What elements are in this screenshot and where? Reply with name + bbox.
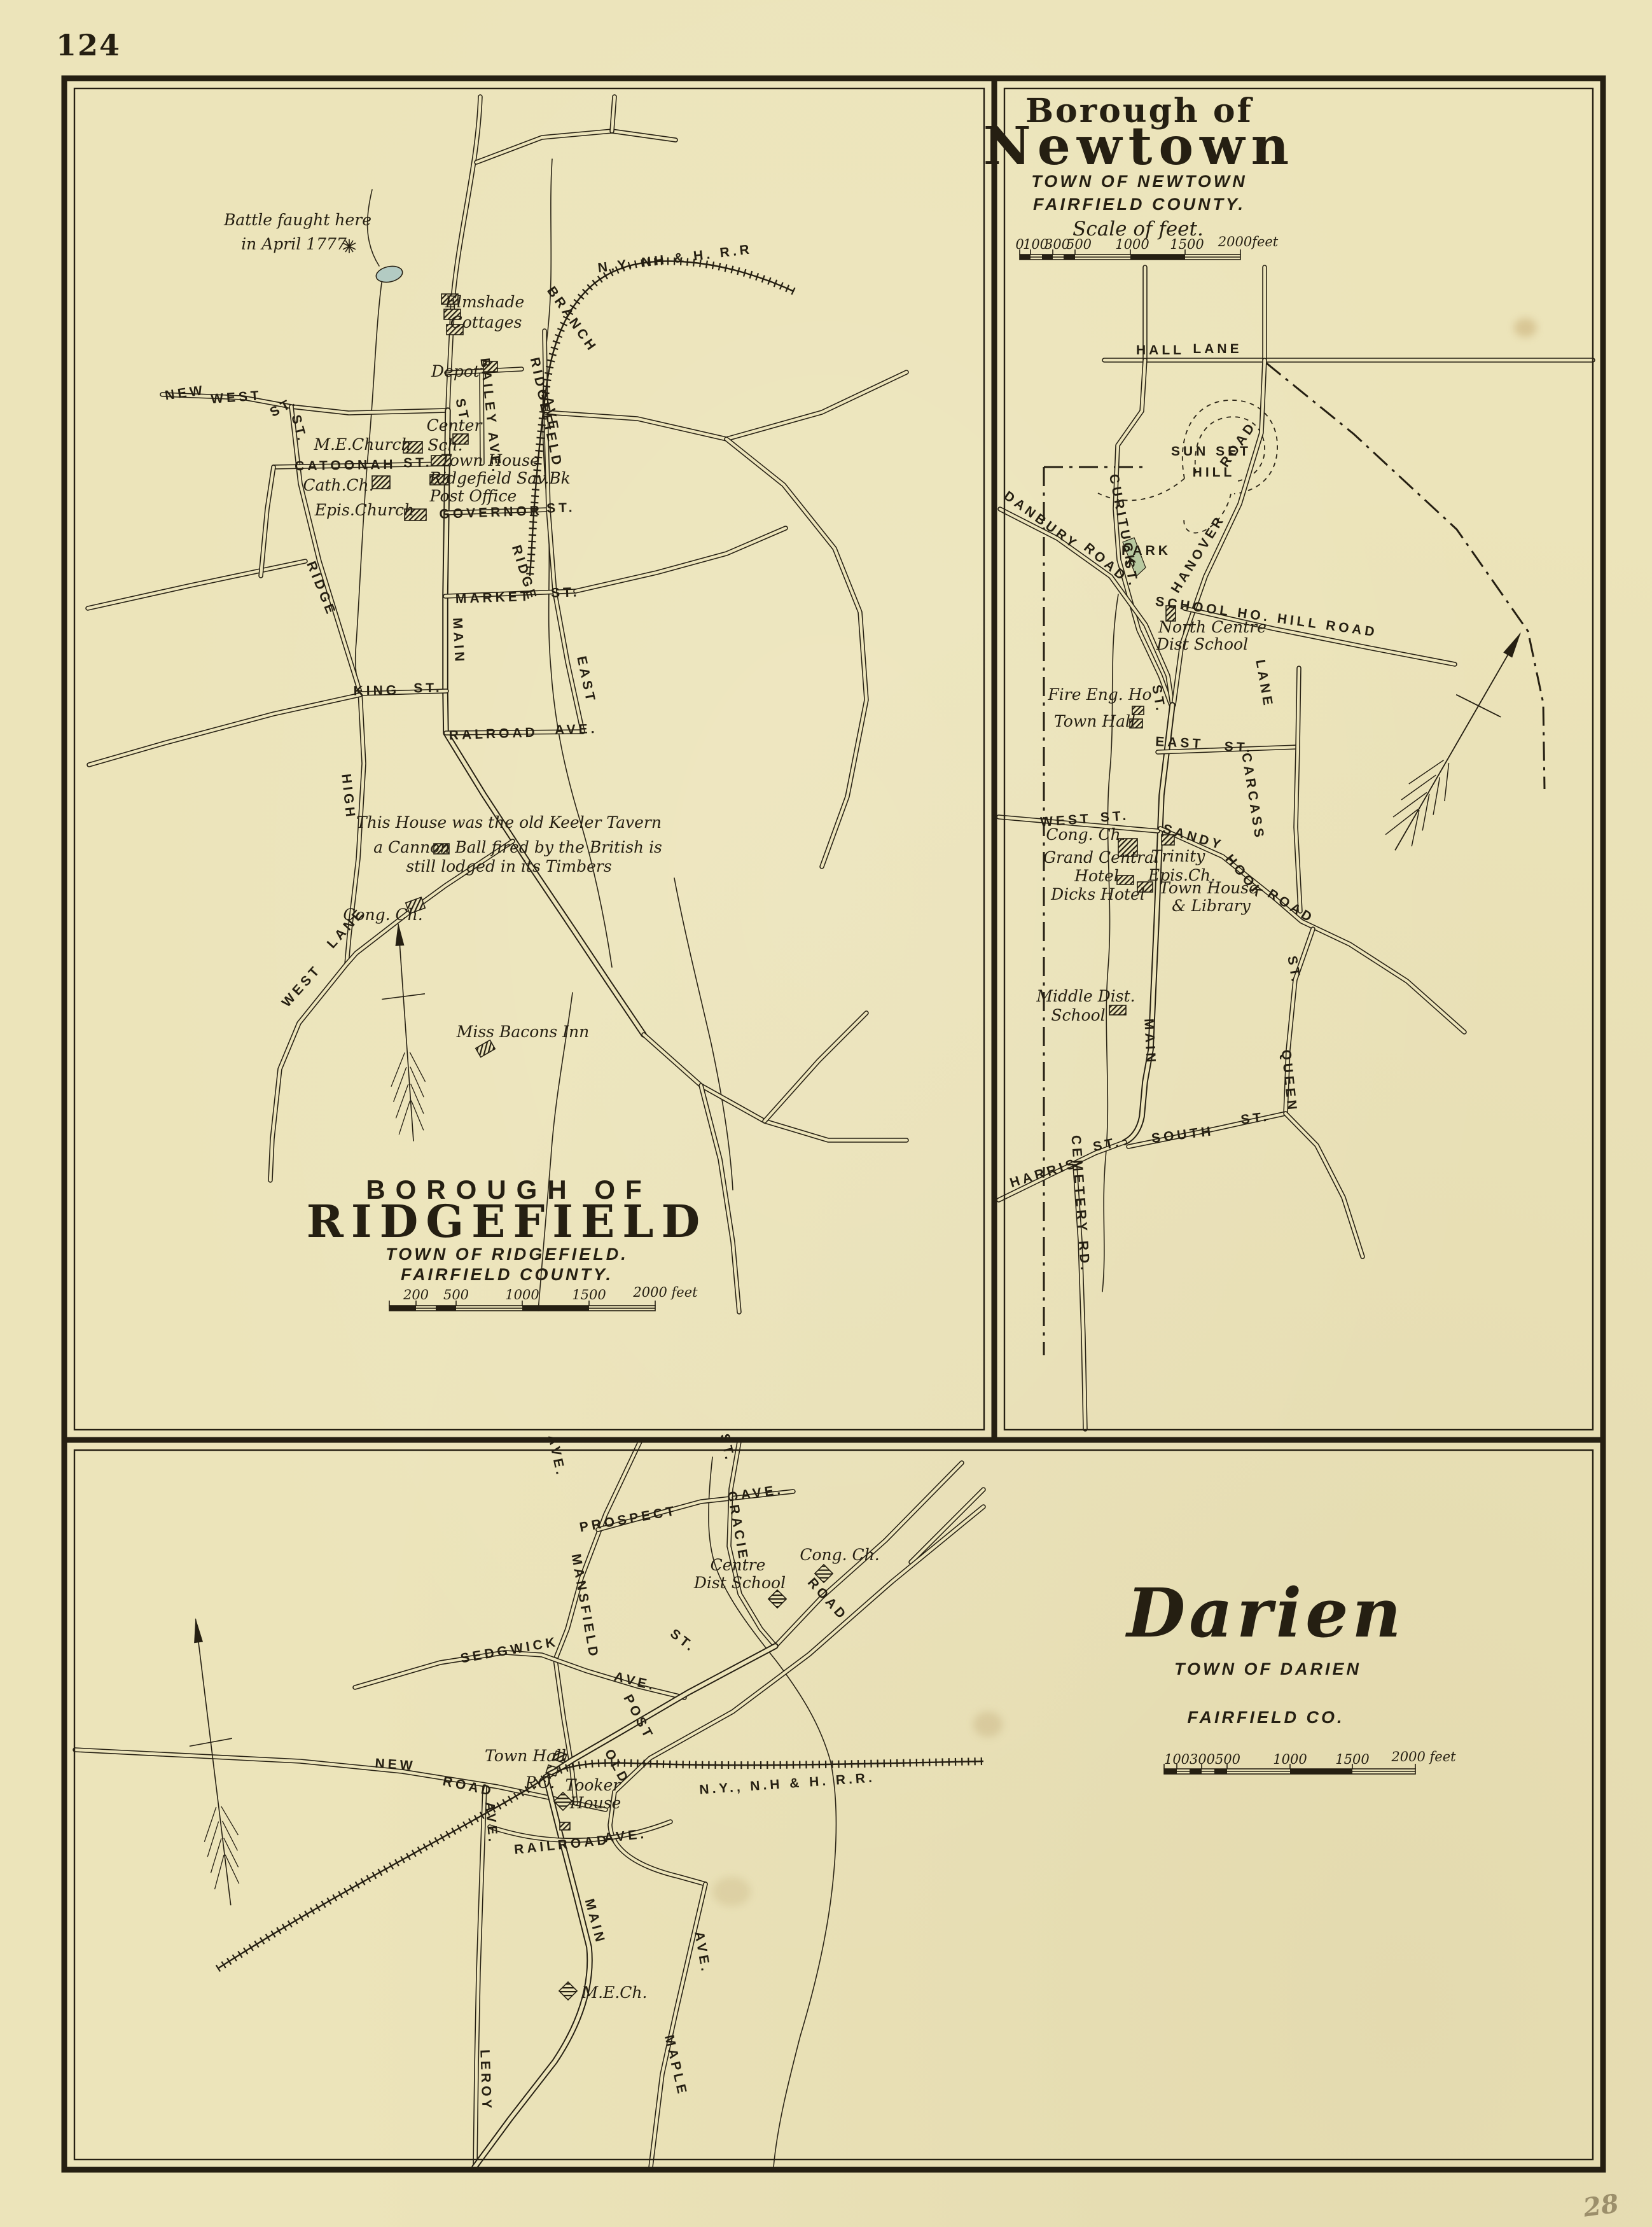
map-label: Centre	[711, 1556, 766, 1574]
atlas-page: 124	[0, 0, 1652, 2227]
map-label: Post Office	[429, 487, 517, 505]
map-label: HANOVER	[1169, 512, 1228, 596]
map-label: 500	[1066, 237, 1092, 252]
handwritten-note: 28	[1581, 2188, 1621, 2223]
map-label: 1500	[1170, 237, 1204, 252]
map-label: NEW	[375, 1756, 416, 1773]
ridgefield-title-block: BOROUGH OF RIDGEFIELD TOWN OF RIDGEFIELD…	[307, 1175, 707, 1284]
map-label: ROAD	[805, 1575, 850, 1624]
map-label: Town Hall	[1054, 712, 1135, 730]
road-core	[475, 1646, 775, 2167]
map-label: AVE.	[740, 1482, 784, 1502]
map-label: BRANCH	[544, 284, 600, 355]
map-label: PARK	[1121, 543, 1171, 558]
map-label: ST.	[413, 681, 443, 696]
newtown-subtitle1: TOWN OF NEWTOWN	[1031, 172, 1247, 191]
map-label: Dist School	[693, 1574, 786, 1592]
map-label: WEST	[211, 388, 263, 407]
map-label: 1000	[1115, 237, 1149, 252]
map-label: 1000	[505, 1287, 539, 1302]
map-label: still lodged in its Timbers	[406, 857, 611, 876]
map-label: EAST	[1155, 734, 1204, 751]
map-label: 1500	[1335, 1752, 1369, 1767]
map-label: N.Y. NH & H. R.R	[597, 242, 753, 276]
map-label: LEROY	[477, 2049, 494, 2112]
map-label: 1500	[572, 1287, 606, 1302]
map-label: Hotel	[1074, 867, 1119, 885]
map-label: PROSPECT	[578, 1504, 678, 1535]
compass-darien	[174, 1616, 253, 1908]
map-label: AVE.	[613, 1669, 658, 1694]
compass-ridgefield	[377, 921, 435, 1143]
map-label: in April 1777	[241, 235, 347, 253]
map-label: ROAD	[1265, 886, 1317, 926]
map-label: Town House	[440, 451, 539, 470]
map-label: Cong. Ch.	[800, 1546, 879, 1564]
road-core	[644, 1035, 906, 1140]
map-label: ST.	[403, 456, 433, 471]
map-label: 300	[1190, 1752, 1215, 1767]
map-label: ST.	[667, 1626, 699, 1656]
map-label: RALROAD	[448, 725, 538, 743]
map-label: Cottages	[450, 313, 522, 332]
map-label: RIDGE	[303, 559, 339, 618]
darien-subtitle1: TOWN OF DARIEN	[1174, 1659, 1361, 1679]
compass-newtown	[1373, 620, 1543, 863]
map-label: Miss Bacons Inn	[456, 1023, 589, 1041]
map-label: MAIN	[450, 617, 467, 665]
ridgefield-subtitle1: TOWN OF RIDGEFIELD.	[385, 1245, 628, 1264]
map-label: SOUTH	[1151, 1124, 1215, 1146]
map-label: Town Hall	[485, 1747, 566, 1765]
map-label: Trinity	[1151, 847, 1206, 865]
map-label: 1000	[1273, 1752, 1307, 1767]
map-label: Ridgefield Sav.Bk	[429, 469, 571, 487]
map-label: Dicks Hotel	[1050, 885, 1145, 904]
map-label: LANE	[1253, 659, 1275, 709]
map-label: MAIN	[1141, 1018, 1158, 1066]
newtown-title-block: Borough of Newtown TOWN OF NEWTOWN FAIRF…	[983, 92, 1296, 241]
map-label: 2000 feet	[632, 1285, 698, 1300]
road-core	[261, 467, 274, 576]
map-label: KING	[353, 683, 399, 698]
darien-title-block: Darien TOWN OF DARIEN FAIRFIELD CO.	[1125, 1573, 1405, 1727]
map-label: 2000feet	[1218, 234, 1279, 249]
map-label: AVE.	[691, 1930, 713, 1975]
map-label: Cong. Ch.	[343, 905, 422, 924]
map-label: ST.	[1100, 808, 1130, 825]
map-label: 500	[1215, 1752, 1240, 1767]
map-label: Depot	[431, 362, 480, 380]
road-core	[1286, 1113, 1363, 1257]
map-label: MARKET	[455, 589, 532, 606]
map-label: Tooker	[566, 1776, 622, 1794]
map-label: Center	[427, 416, 483, 435]
map-label: AVE.	[555, 722, 598, 737]
map-label: Battle faught here	[223, 211, 371, 229]
map-label: Middle Dist.	[1036, 987, 1135, 1005]
map-label: 100	[1164, 1752, 1190, 1767]
map-label: HALL	[1136, 343, 1184, 358]
map-label: Cong. Ch.	[1046, 825, 1125, 844]
darien-title: Darien	[1125, 1573, 1405, 1652]
map-label: This House was the old Keeler Tavern	[356, 813, 662, 832]
map-label: P.O.	[525, 1773, 555, 1792]
newtown-title-line2: Newtown	[983, 116, 1296, 177]
map-label: 2000 feet	[1391, 1749, 1456, 1764]
map-label: GOVERNOR	[439, 503, 543, 522]
buildings	[372, 294, 1176, 2000]
map-label: ST.	[546, 500, 576, 516]
map-borders	[64, 78, 1603, 2170]
map-label: HIGH	[338, 773, 357, 821]
map-label: Grand Central	[1043, 848, 1159, 867]
map-label: Epis.Church	[314, 501, 414, 519]
map-label: a Cannon Ball fired by the British is	[373, 838, 662, 856]
map-label: ST.	[717, 1432, 737, 1463]
ridgefield-subtitle2: FAIRFIELD COUNTY.	[401, 1265, 613, 1284]
map-label: NEW	[164, 383, 207, 403]
map-label: Dist School	[1156, 635, 1248, 653]
map-label: 200	[403, 1287, 429, 1302]
map-label: School	[1051, 1006, 1105, 1024]
road-core	[88, 561, 305, 608]
map-label: ST.	[288, 413, 310, 445]
map-label: House	[569, 1794, 621, 1812]
map-label: N.Y., N.H & H. R.R.	[699, 1770, 876, 1797]
map-label: M.E.Church	[313, 435, 411, 454]
newtown-subtitle2: FAIRFIELD COUNTY.	[1033, 195, 1246, 214]
road-core	[546, 372, 906, 439]
map-label: North Centre	[1158, 618, 1267, 636]
map-label: Elmshade	[445, 293, 525, 311]
map-label: CATOONAH	[295, 457, 396, 474]
map-label: ST.	[1240, 1109, 1270, 1127]
map-label: SEDGWICK	[459, 1635, 559, 1666]
roads	[75, 97, 1593, 2167]
map-label: ST.	[551, 585, 580, 601]
map-label: QUEEN	[1279, 1049, 1300, 1114]
road-core	[1000, 509, 1172, 705]
map-label: LANE	[1193, 342, 1242, 356]
map-label: ST.	[1092, 1134, 1123, 1154]
map-label: M.E.Ch.	[581, 1983, 648, 2002]
outer-border	[64, 78, 1603, 2170]
map-labels: NEWWESTST.ST.RIDGEHIGHCATOONAHST.ST.MAIN…	[164, 211, 1456, 2112]
map-label: CARCASS	[1239, 752, 1267, 842]
darien-subtitle2: FAIRFIELD CO.	[1188, 1708, 1345, 1727]
map-label: Cath.Ch.	[303, 476, 373, 494]
map-label: & Library	[1172, 897, 1251, 915]
map-label: Fire Eng. Ho	[1047, 685, 1151, 704]
map-label: DANBURY	[1001, 489, 1081, 552]
ridgefield-title-line2: RIDGEFIELD	[307, 1195, 707, 1248]
map-label: 500	[443, 1287, 469, 1302]
map-label: ROAD	[441, 1774, 496, 1799]
map-canvas: BOROUGH OF RIDGEFIELD TOWN OF RIDGEFIELD…	[0, 0, 1652, 2227]
